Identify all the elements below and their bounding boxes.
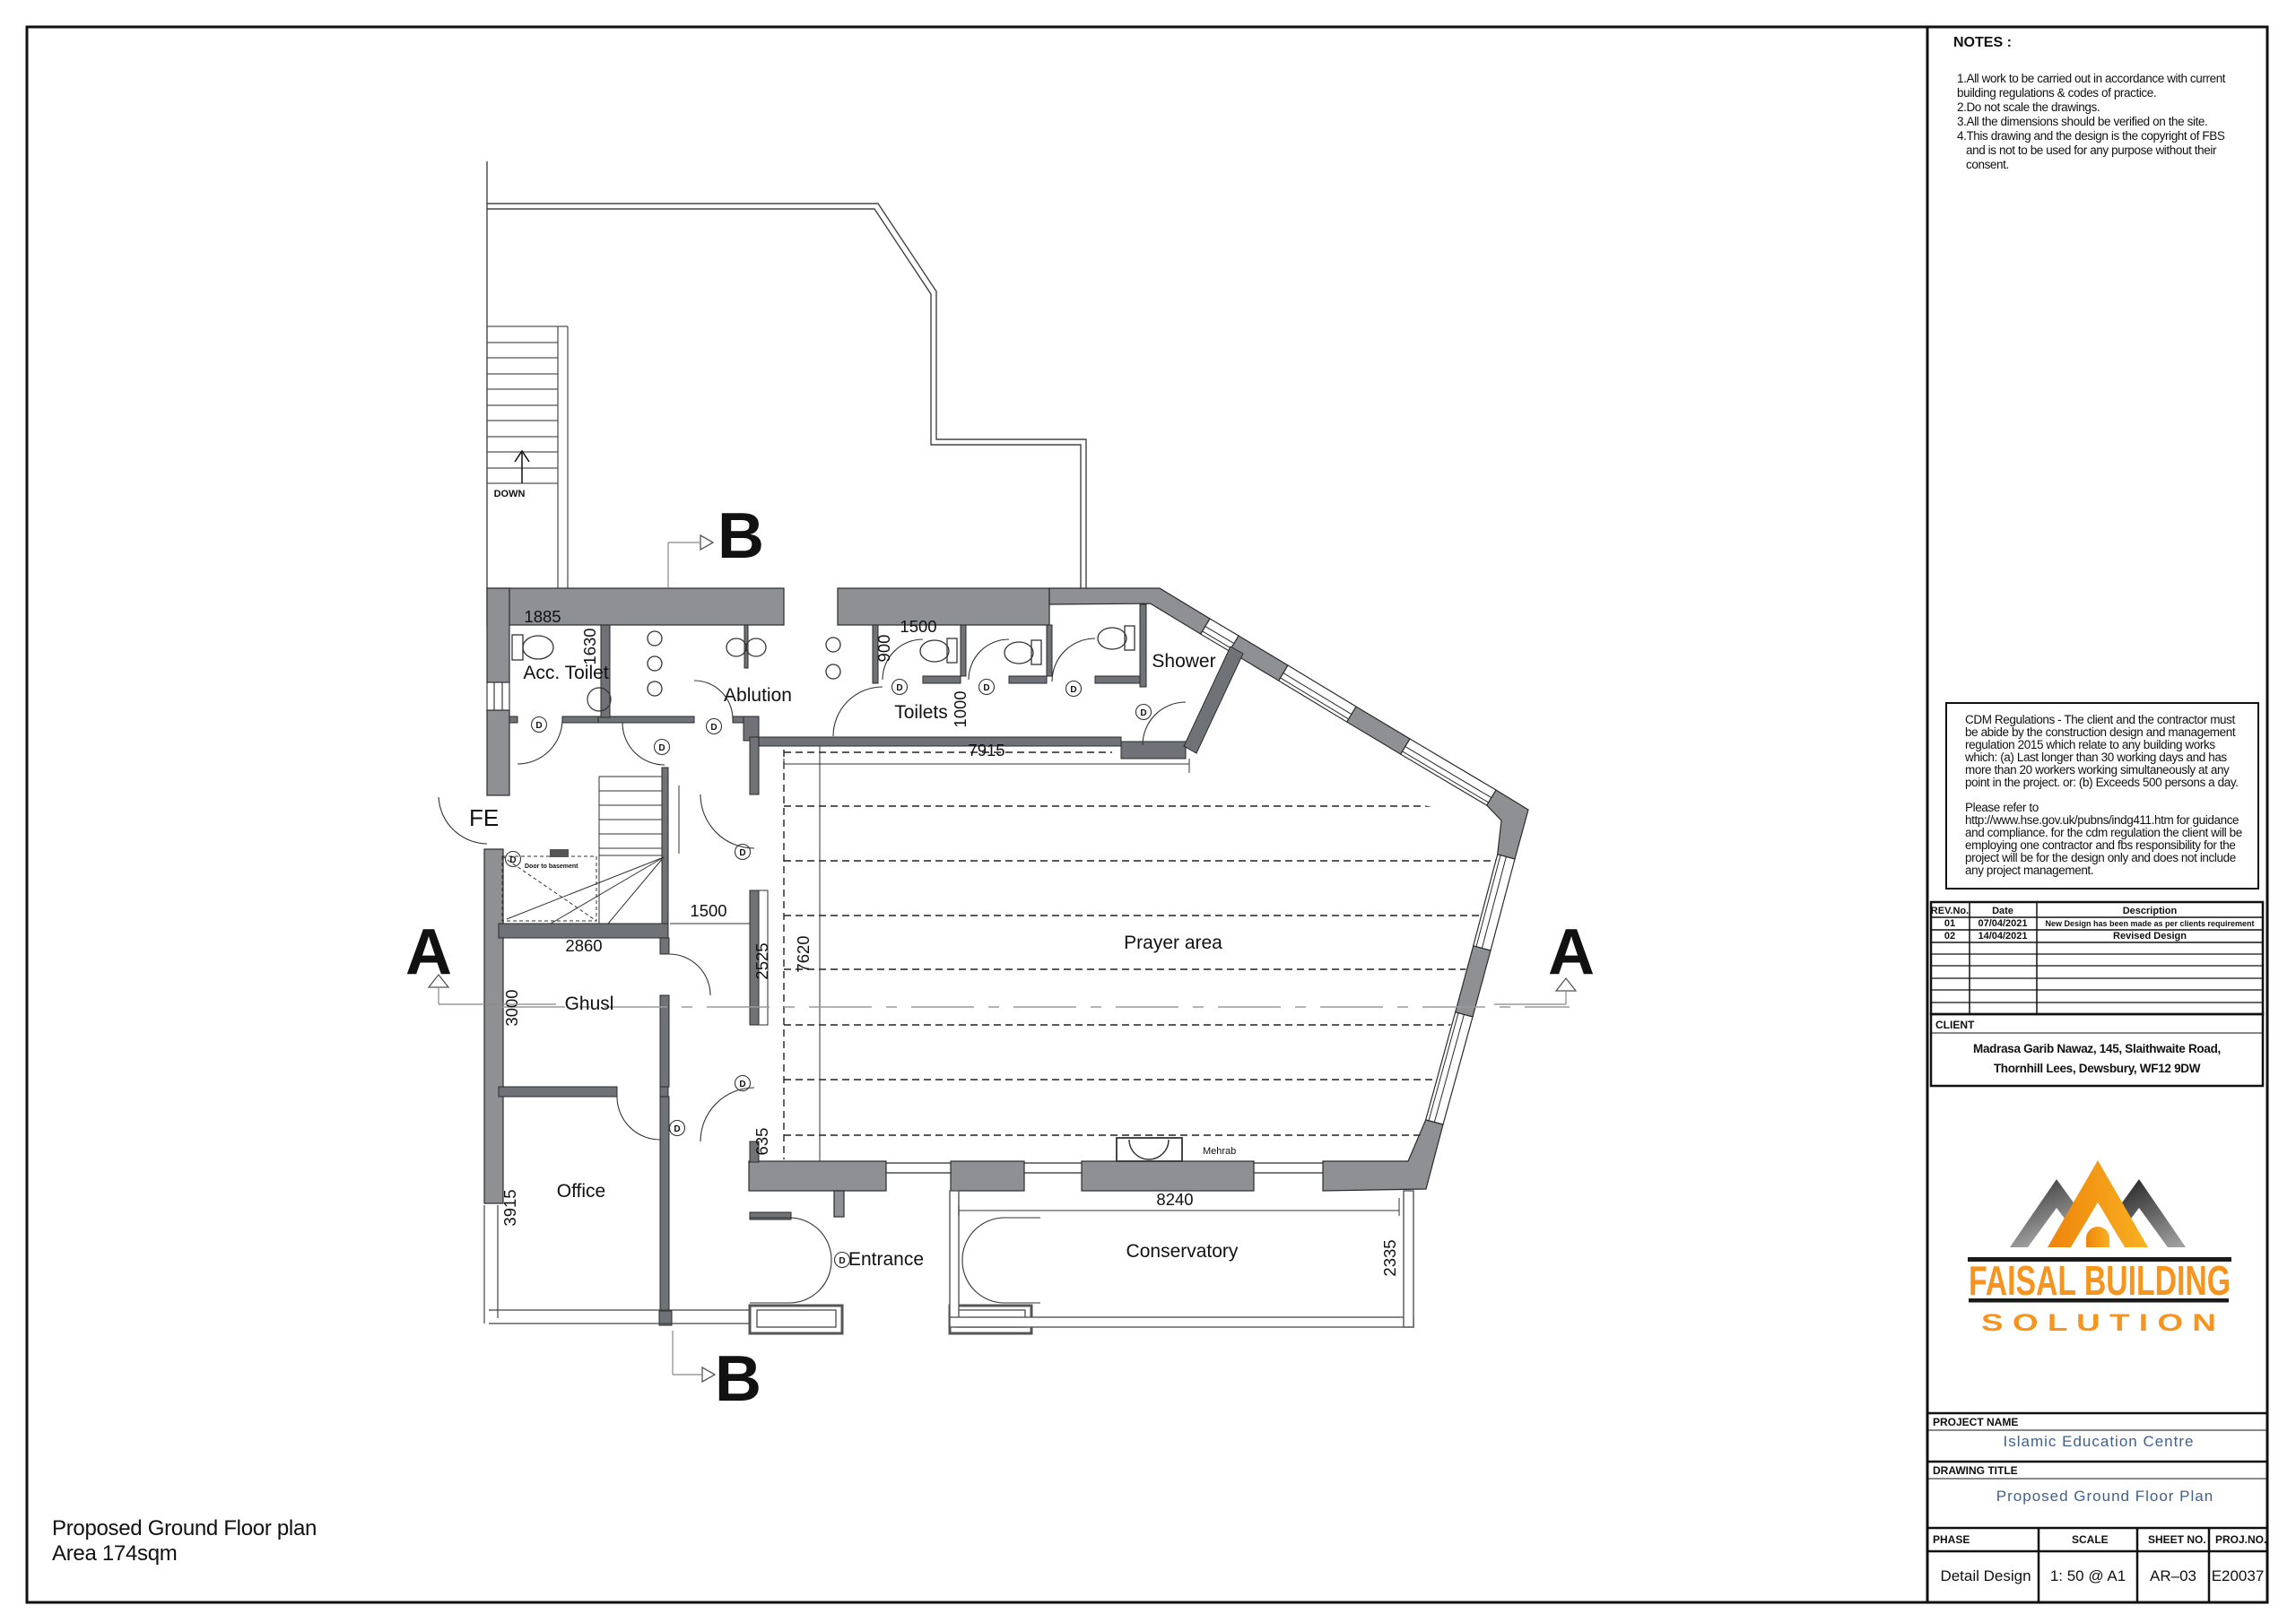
svg-text:http://www.hse.gov.uk/pubns/in: http://www.hse.gov.uk/pubns/indg411.htm … [1965,813,2239,827]
svg-text:REV.No.: REV.No. [1931,906,1969,916]
svg-text:7620: 7620 [794,935,813,972]
svg-text:D: D [509,855,516,865]
svg-text:AR–03: AR–03 [2150,1567,2196,1584]
svg-text:Detail Design: Detail Design [1940,1567,2031,1584]
svg-text:2.Do not scale the drawings.: 2.Do not scale the drawings. [1957,100,2100,114]
svg-text:02: 02 [1944,931,1955,942]
svg-text:which: (a) Last longer than 30: which: (a) Last longer than 30 working d… [1964,751,2227,764]
svg-text:New Design has been made as pe: New Design has been made as per clients … [2045,919,2254,928]
svg-text:1.All work to be carried out i: 1.All work to be carried out in accordan… [1957,72,2226,85]
svg-text:project will be for the design: project will be for the design only and … [1965,851,2236,864]
svg-text:regulation 2015 which relate t: regulation 2015 which relate to any buil… [1965,738,2215,751]
svg-text:FAISAL BUILDING: FAISAL BUILDING [1969,1257,2231,1304]
svg-text:8240: 8240 [1156,1190,1193,1209]
svg-text:PHASE: PHASE [1933,1533,1970,1546]
svg-text:1000: 1000 [951,690,970,727]
svg-text:D: D [535,721,542,731]
svg-text:Proposed Ground Floor plan: Proposed Ground Floor plan [52,1516,317,1541]
svg-text:Area 174sqm: Area 174sqm [52,1541,177,1566]
svg-text:B: B [715,1343,761,1415]
svg-text:point in the project. or: (b): point in the project. or: (b) Exceeds 50… [1965,776,2239,789]
svg-text:A: A [1548,916,1595,988]
svg-text:2860: 2860 [565,936,602,955]
svg-text:and is not to be used for any: and is not to be used for any purpose wi… [1966,143,2217,157]
svg-text:building regulations & codes o: building regulations & codes of practice… [1957,86,2156,100]
svg-text:Shower: Shower [1152,651,1215,672]
svg-text:PROJ.NO.: PROJ.NO. [2215,1533,2266,1546]
svg-text:14/04/2021: 14/04/2021 [1978,931,2027,942]
svg-text:2335: 2335 [1380,1239,1399,1276]
svg-text:Revised Design: Revised Design [2113,931,2187,942]
svg-text:1885: 1885 [524,607,561,626]
svg-text:Description: Description [2123,906,2178,916]
svg-text:SHEET NO.: SHEET NO. [2148,1533,2206,1546]
svg-text:D: D [658,743,665,753]
svg-text:07/04/2021: 07/04/2021 [1978,918,2027,929]
svg-text:Proposed Ground Floor Plan: Proposed Ground Floor Plan [1996,1488,2213,1505]
svg-text:and compliance. for the cdm re: and compliance. for the cdm regulation t… [1965,826,2242,839]
svg-text:any project management.: any project management. [1965,864,2093,877]
svg-text:Toilets: Toilets [894,702,948,723]
svg-text:1: 50 @ A1: 1: 50 @ A1 [2050,1567,2126,1584]
svg-text:3.All the dimensions should be: 3.All the dimensions should be verified … [1957,115,2207,128]
svg-text:Ghusl: Ghusl [565,994,614,1014]
svg-text:3000: 3000 [502,989,521,1026]
svg-text:NOTES :: NOTES : [1953,35,2012,50]
svg-text:be abide by the construction d: be abide by the construction design and … [1965,725,2236,739]
svg-text:Office: Office [557,1181,605,1202]
svg-text:Ablution: Ablution [724,685,792,706]
svg-text:DRAWING TITLE: DRAWING TITLE [1933,1464,2018,1477]
svg-text:1500: 1500 [690,901,726,920]
svg-text:Mehrab: Mehrab [1203,1146,1236,1157]
svg-text:Islamic Education Centre: Islamic Education Centre [2004,1433,2195,1450]
svg-text:4.This drawing and the design: 4.This drawing and the design is the cop… [1957,129,2225,143]
svg-text:3915: 3915 [500,1189,519,1226]
svg-text:D: D [739,1080,745,1089]
svg-text:7915: 7915 [968,741,1004,759]
svg-text:Madrasa Garib Nawaz, 145, Slai: Madrasa Garib Nawaz, 145, Slaithwaite Ro… [1973,1042,2221,1055]
svg-text:2525: 2525 [752,942,771,979]
svg-text:FE: FE [469,804,499,831]
svg-text:Prayer area: Prayer area [1124,933,1222,953]
svg-text:Date: Date [1992,906,2013,916]
svg-text:D: D [983,683,989,693]
svg-text:PROJECT NAME: PROJECT NAME [1933,1416,2018,1428]
svg-text:D: D [896,683,902,693]
svg-text:S O L U T I O N: S O L U T I O N [1981,1309,2216,1336]
svg-text:CLIENT: CLIENT [1935,1019,1975,1031]
svg-text:more than 20 workers working s: more than 20 workers working simultaneou… [1965,763,2230,777]
svg-text:Door to basement: Door to basement [525,864,578,870]
svg-text:employing one contractor and f: employing one contractor and fbs respons… [1965,838,2235,852]
svg-text:D: D [1140,708,1146,718]
svg-text:D: D [739,848,745,858]
svg-text:A: A [405,916,452,988]
svg-text:D: D [839,1256,845,1266]
svg-text:Entrance: Entrance [848,1249,924,1270]
svg-text:1500: 1500 [900,617,936,636]
svg-text:D: D [1070,685,1076,695]
svg-text:Conservatory: Conservatory [1126,1241,1239,1262]
svg-text:1630: 1630 [580,628,599,664]
svg-text:DOWN: DOWN [494,489,526,499]
svg-text:01: 01 [1944,918,1955,929]
svg-text:B: B [717,500,764,572]
svg-text:D: D [710,723,717,733]
svg-text:D: D [674,1124,680,1134]
svg-text:635: 635 [752,1128,771,1156]
svg-text:Please refer to: Please refer to [1965,801,2039,814]
svg-text:E20037: E20037 [2212,1567,2265,1584]
svg-text:consent.: consent. [1966,158,2009,171]
svg-text:CDM Regulations - The client a: CDM Regulations - The client and the con… [1965,713,2235,726]
svg-text:Thornhill Lees, Dewsbury, WF12: Thornhill Lees, Dewsbury, WF12 9DW [1994,1062,2201,1075]
svg-text:SCALE: SCALE [2072,1533,2109,1546]
svg-text:900: 900 [874,635,893,663]
